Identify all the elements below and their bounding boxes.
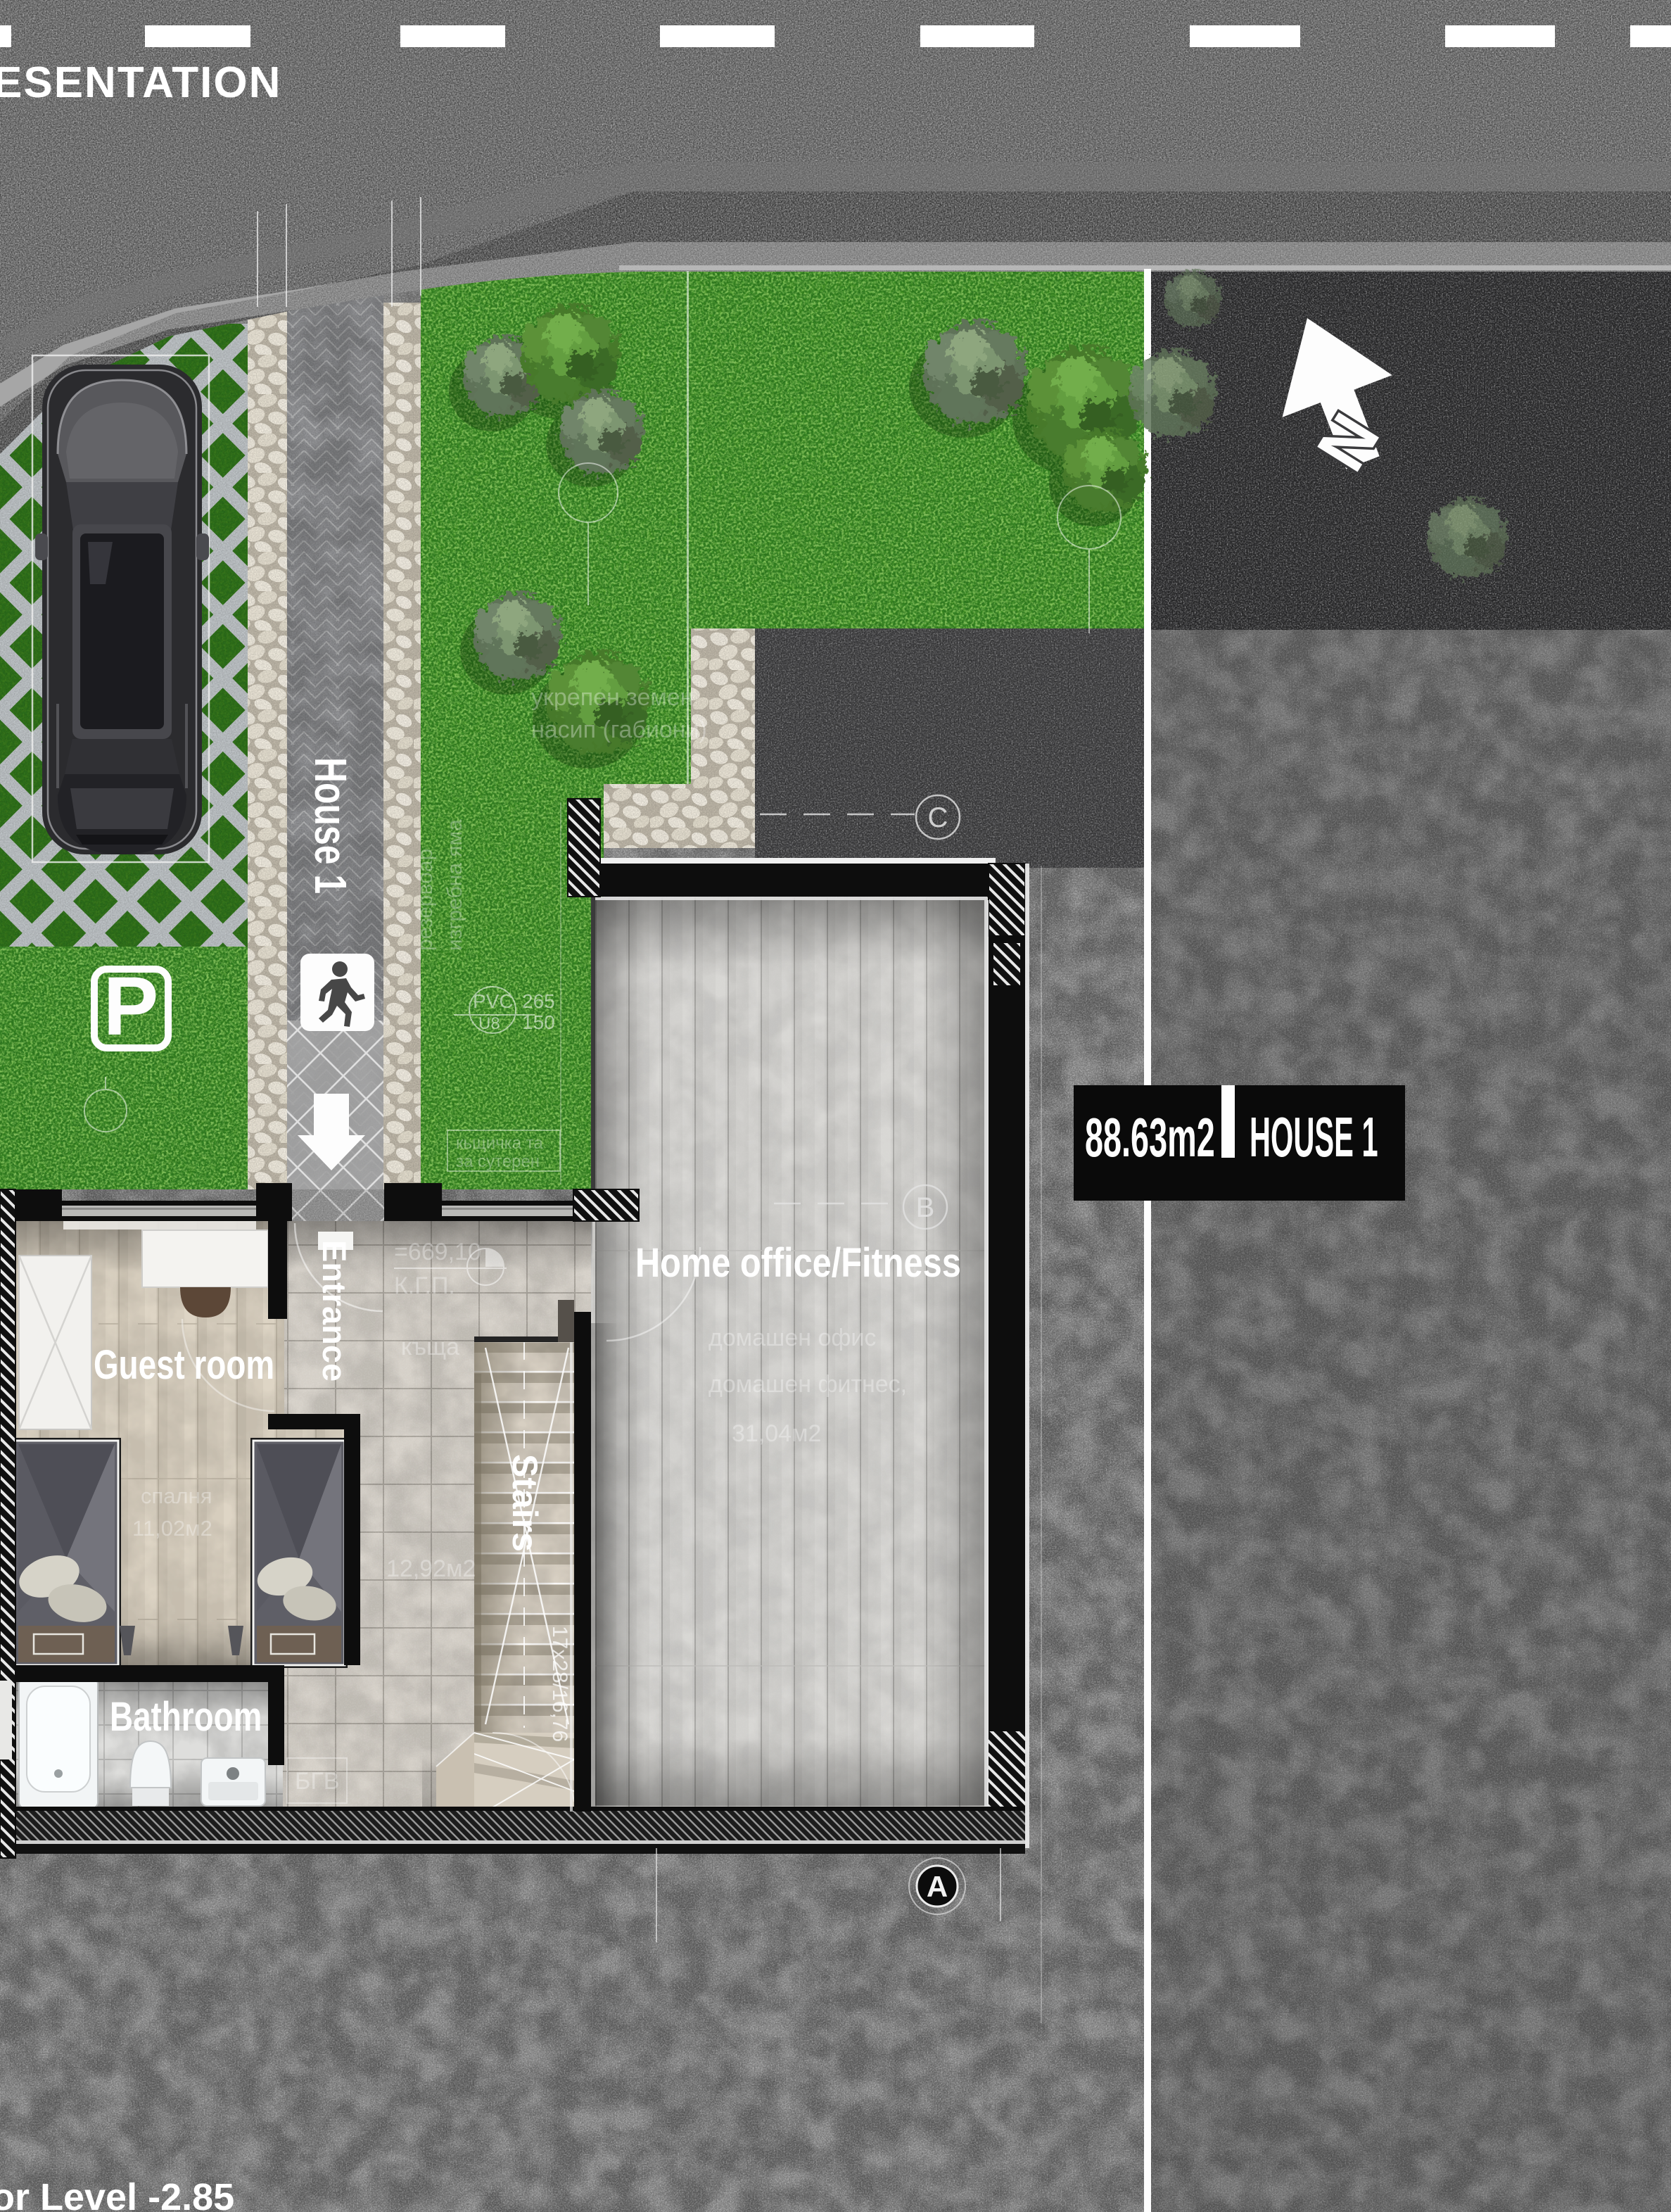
svg-text:265: 265 <box>522 990 555 1012</box>
svg-text:Entrance: Entrance <box>316 1240 353 1382</box>
svg-text:укрепен земен: укрепен земен <box>531 684 693 711</box>
svg-text:A: A <box>927 1870 948 1903</box>
svg-text:кьщичка та: кьщичка та <box>456 1134 543 1153</box>
svg-text:К.Г.П.: К.Г.П. <box>394 1272 455 1299</box>
svg-text:11,02м2: 11,02м2 <box>132 1516 212 1541</box>
svg-text:резервоар: резервоар <box>414 849 437 951</box>
svg-text:БГВ: БГВ <box>295 1768 339 1795</box>
svg-text:HOUSE 1: HOUSE 1 <box>1250 1105 1378 1168</box>
svg-text:House 1: House 1 <box>305 757 355 894</box>
svg-text:за сутерен: за сутерен <box>456 1152 540 1171</box>
svg-text:ESENTATION: ESENTATION <box>0 58 281 107</box>
svg-text:88.63m2: 88.63m2 <box>1085 1107 1215 1168</box>
svg-text:P: P <box>103 960 159 1053</box>
svg-text:къща: къща <box>401 1334 459 1360</box>
svg-text:Stairs: Stairs <box>505 1454 545 1552</box>
svg-text:C: C <box>928 802 948 833</box>
svg-text:насип (габиони): насип (габиони) <box>531 716 707 743</box>
svg-text:U8: U8 <box>478 1014 500 1033</box>
svg-text:спалня: спалня <box>141 1484 212 1508</box>
svg-text:Guest room: Guest room <box>94 1343 274 1388</box>
svg-text:12,92м2: 12,92м2 <box>386 1555 476 1582</box>
svg-text:17x28/16,76: 17x28/16,76 <box>548 1626 571 1742</box>
svg-text:домашен фитнес,: домашен фитнес, <box>709 1371 907 1398</box>
svg-text:Bathroom: Bathroom <box>110 1695 262 1740</box>
svg-text:B: B <box>916 1192 935 1223</box>
svg-text:PVC: PVC <box>473 990 514 1012</box>
svg-text:31,04м2: 31,04м2 <box>732 1420 821 1447</box>
svg-text:Home office/Fitness: Home office/Fitness <box>635 1241 961 1286</box>
svg-text:or Level -2.85: or Level -2.85 <box>0 2176 234 2212</box>
svg-text:изгребна яма: изгребна яма <box>443 819 466 951</box>
svg-text:домашен офис: домашен офис <box>709 1325 876 1351</box>
